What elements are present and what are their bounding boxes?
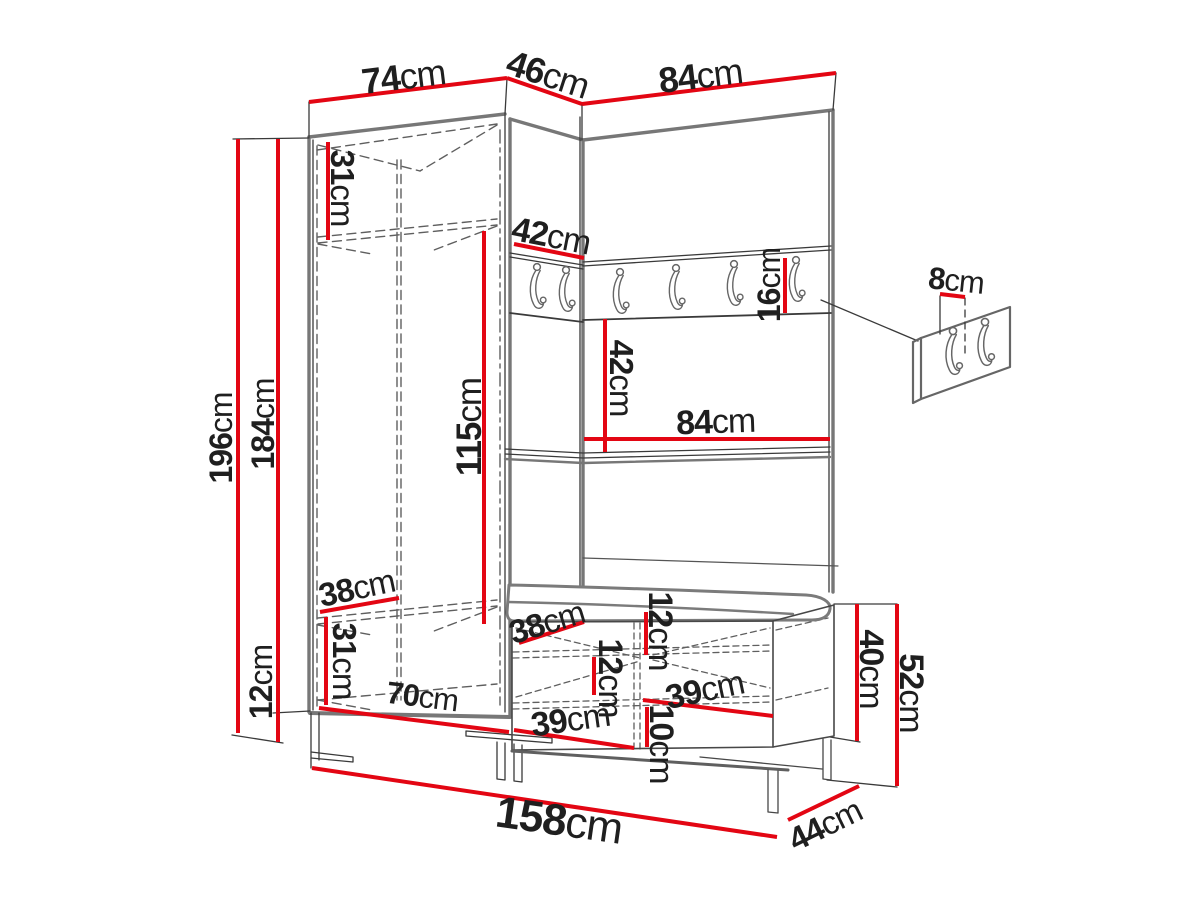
svg-text:158cm: 158cm [493,788,626,854]
svg-text:10cm: 10cm [642,704,680,783]
svg-text:184cm: 184cm [245,378,281,469]
svg-text:40cm: 40cm [852,629,890,708]
svg-text:12cm: 12cm [641,591,679,670]
svg-text:31cm: 31cm [326,623,363,700]
svg-text:84cm: 84cm [675,402,755,443]
svg-text:74cm: 74cm [359,51,447,102]
svg-text:12cm: 12cm [243,645,279,719]
svg-text:8cm: 8cm [927,260,986,301]
svg-text:42cm: 42cm [603,340,640,417]
svg-text:196cm: 196cm [203,392,239,483]
svg-text:70cm: 70cm [385,675,461,718]
svg-text:38cm: 38cm [315,562,398,614]
svg-text:16cm: 16cm [751,248,787,322]
svg-text:46cm: 46cm [502,42,595,107]
svg-text:31cm: 31cm [324,150,361,227]
svg-text:84cm: 84cm [656,50,744,101]
svg-text:52cm: 52cm [892,653,930,732]
svg-text:115cm: 115cm [450,378,489,476]
